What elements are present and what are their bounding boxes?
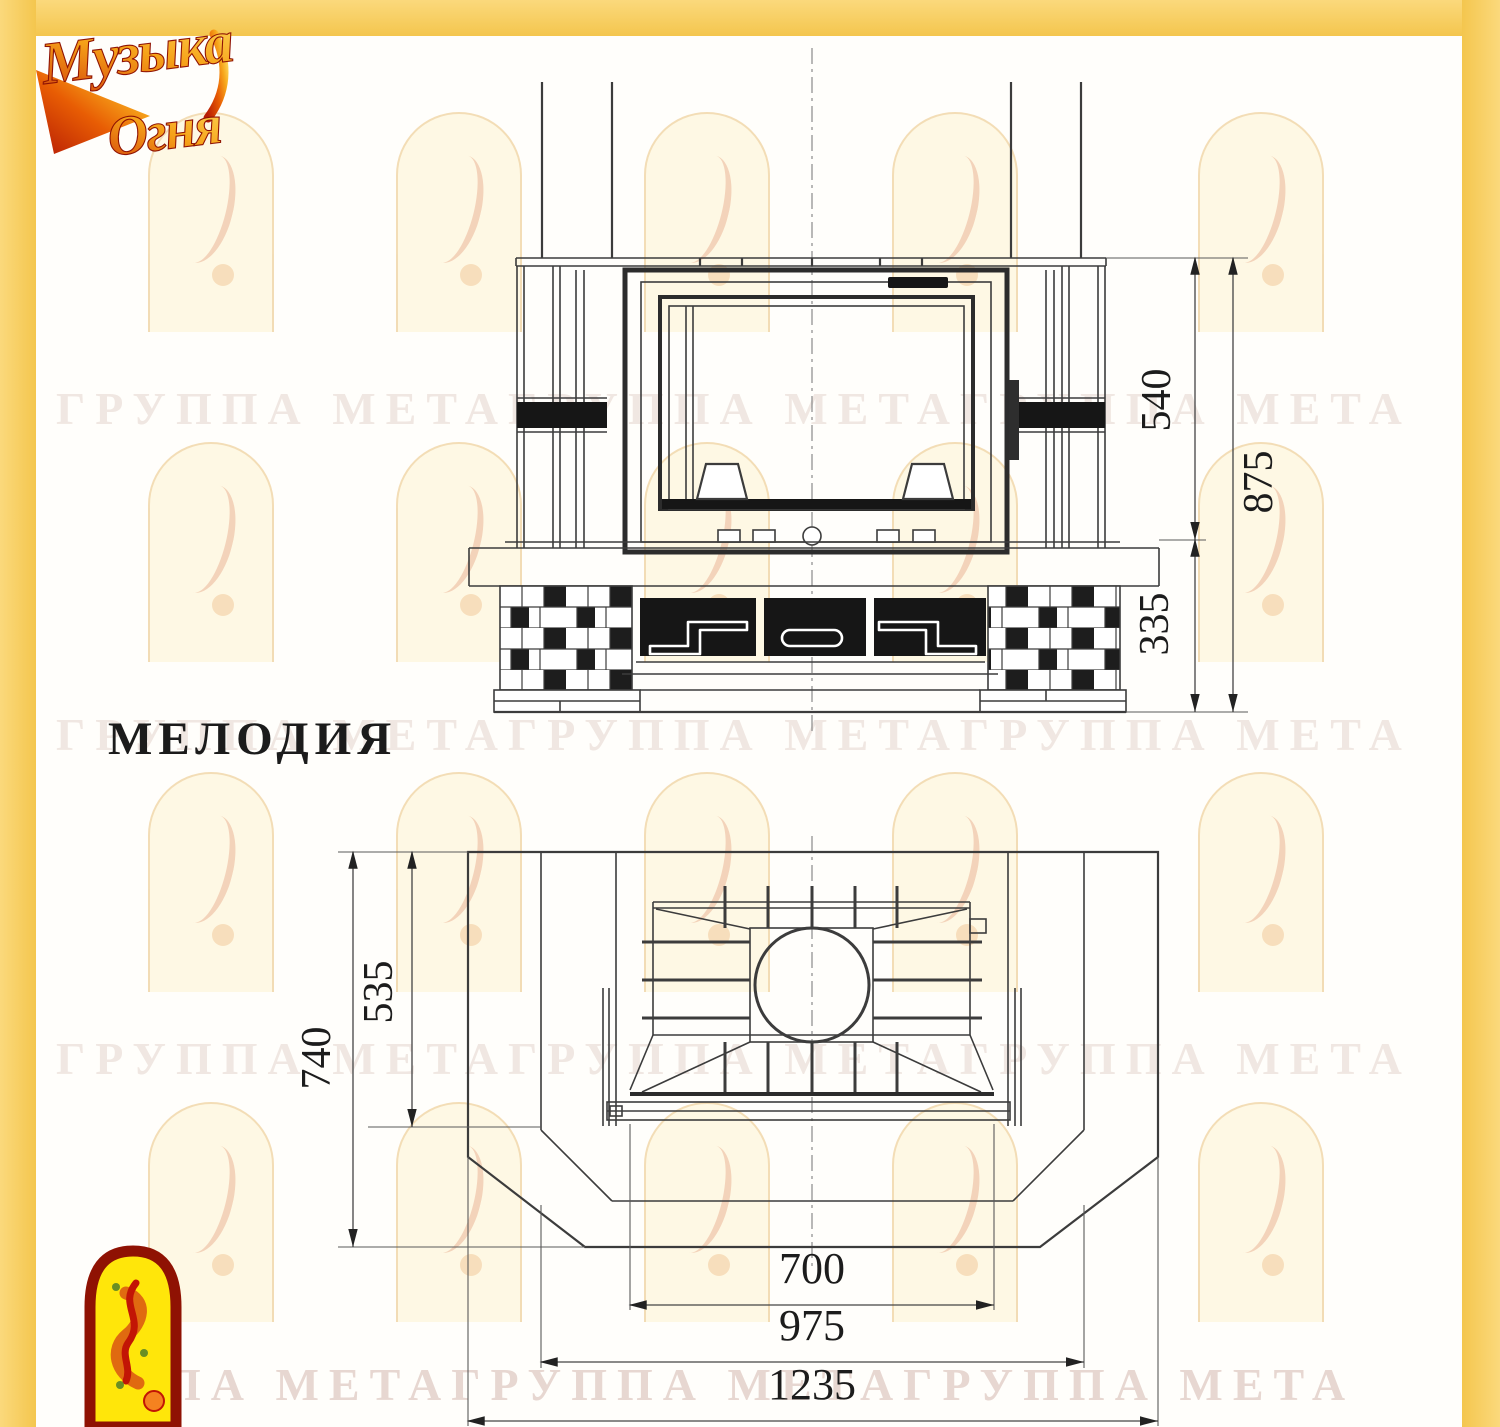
page: ГРУППА МЕТАГРУППА МЕТАГРУППА МЕТА ГРУППА… (0, 0, 1500, 1427)
vent-slot (753, 530, 775, 542)
dim-label-335: 335 (1132, 593, 1178, 656)
front-view-drawing: 540 335 875 (400, 40, 1300, 740)
dim-label-535: 535 (356, 961, 402, 1024)
vent-slot (877, 530, 899, 542)
frame-left (0, 0, 36, 1427)
mosaic-pedestal-right (988, 586, 1120, 690)
dim-label-740: 740 (300, 1027, 340, 1090)
dim-label-875: 875 (1236, 451, 1282, 514)
dim-label-975: 975 (779, 1301, 845, 1350)
pillar-black-insert (1015, 402, 1105, 428)
brand-logo-line2: Огня (104, 94, 224, 169)
watermark-arch-emblem (148, 442, 274, 662)
dim-label-700: 700 (779, 1244, 845, 1293)
watermark-arch-emblem (148, 772, 274, 992)
mosaic-pedestal-left (500, 586, 632, 690)
shelf-ticks (700, 258, 922, 266)
door-handle (1009, 380, 1019, 460)
meta-emblem (80, 1235, 186, 1427)
frame-right (1462, 0, 1500, 1427)
emblem-sun-icon (144, 1391, 164, 1411)
vent-slot (718, 530, 740, 542)
plan-view-drawing: 740 535 700 975 1235 (300, 830, 1300, 1427)
vent-slot (913, 530, 935, 542)
andiron-left (697, 464, 747, 499)
brand-logo-line1: Музыка (37, 8, 237, 97)
base-step-lines (622, 662, 998, 690)
pillar-black-insert (517, 402, 607, 428)
dim-label-1235: 1235 (768, 1360, 856, 1409)
extension-lines (338, 852, 585, 1247)
model-title: МЕЛОДИЯ (108, 712, 397, 766)
insert-brand-plate (888, 277, 948, 288)
brand-logo: Музыка Огня (18, 8, 288, 178)
emblem-leaf-dot (112, 1283, 120, 1291)
dim-label-540: 540 (1134, 369, 1180, 432)
bottom-grate-bars (725, 1042, 897, 1096)
handle-stub (970, 919, 986, 933)
emblem-leaf-dot (140, 1349, 148, 1357)
andiron-right (903, 464, 953, 499)
emblem-leaf-dot (116, 1381, 124, 1389)
top-grate-bars (725, 886, 897, 928)
firebox-sill (662, 499, 971, 509)
glass-divider (686, 306, 693, 499)
